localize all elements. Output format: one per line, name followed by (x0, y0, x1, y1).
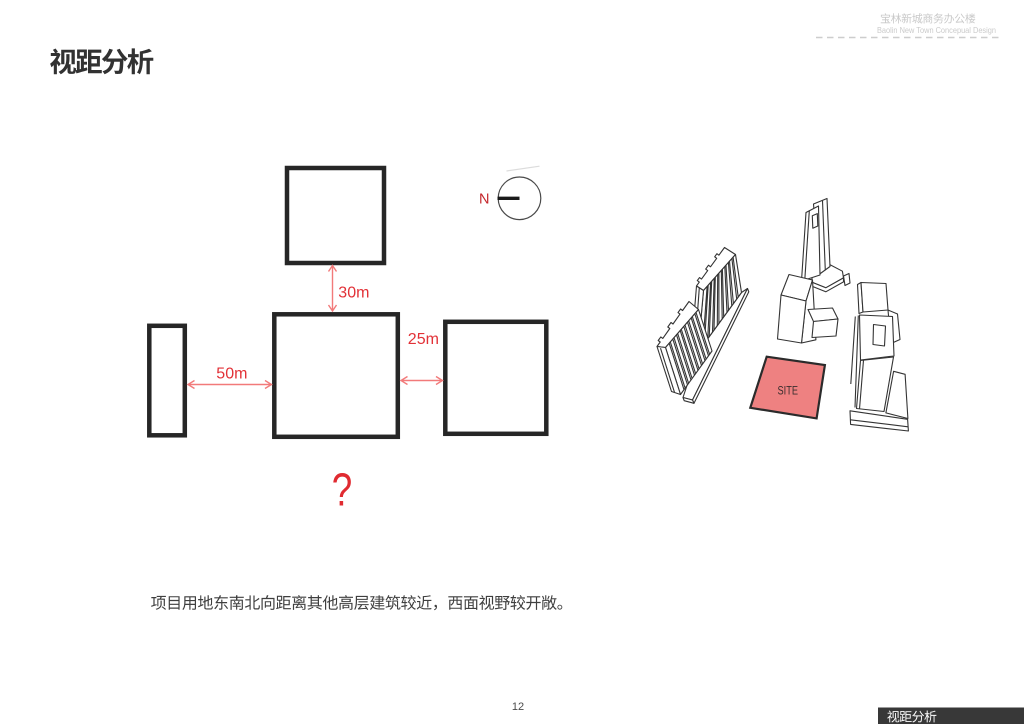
svg-text:?: ? (332, 464, 353, 516)
svg-text:SITE: SITE (778, 386, 799, 398)
svg-text:25m: 25m (408, 331, 439, 348)
svg-text:N: N (479, 192, 489, 208)
svg-text:30m: 30m (338, 284, 369, 301)
svg-text:Baolin New Town Concepual Desi: Baolin New Town Concepual Design (877, 25, 996, 35)
svg-text:12: 12 (512, 701, 524, 713)
svg-text:50m: 50m (216, 365, 247, 382)
